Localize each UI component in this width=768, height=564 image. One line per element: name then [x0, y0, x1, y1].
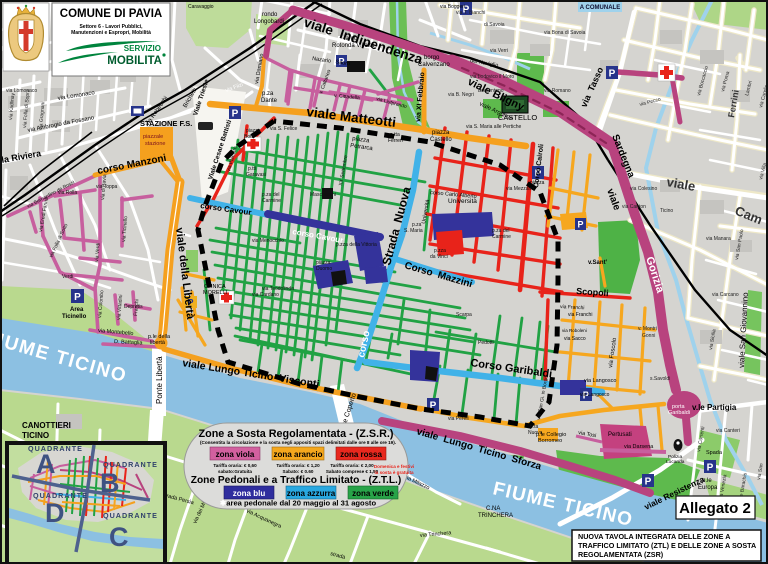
svg-text:Rotonda Villetta: Rotonda Villetta	[332, 43, 375, 49]
svg-text:Sabato comprese € 1,50: Sabato comprese € 1,50	[326, 469, 379, 474]
svg-text:COMUNE DI PAVIA: COMUNE DI PAVIA	[60, 8, 162, 20]
svg-text:via Sacco: via Sacco	[564, 336, 586, 342]
svg-text:via S. Maria alle Pertiche: via S. Maria alle Pertiche	[466, 124, 522, 130]
svg-text:Breventano: Breventano	[478, 88, 504, 94]
svg-text:zona arancio: zona arancio	[274, 450, 323, 459]
svg-text:via Colesino: via Colesino	[630, 186, 657, 192]
svg-text:C: C	[109, 522, 129, 552]
svg-text:SERVIZIO: SERVIZIO	[124, 44, 161, 53]
svg-text:zona viola: zona viola	[216, 450, 255, 459]
svg-text:Mascheroni: Mascheroni	[310, 192, 336, 198]
svg-text:P: P	[232, 109, 239, 120]
svg-text:largo: largo	[344, 36, 358, 42]
svg-text:Caravaggio: Caravaggio	[188, 4, 214, 10]
svg-text:via Franchi: via Franchi	[568, 312, 592, 318]
svg-text:Allegato 2: Allegato 2	[679, 500, 751, 517]
svg-text:via Bona di Savoia: via Bona di Savoia	[544, 30, 586, 36]
svg-text:P: P	[707, 463, 714, 474]
svg-text:P: P	[645, 477, 652, 488]
svg-text:Tariffa oraria: € 0,60: Tariffa oraria: € 0,60	[213, 463, 257, 468]
svg-text:Castello: Castello	[430, 137, 452, 143]
svg-text:Pedotti: Pedotti	[478, 340, 494, 346]
svg-text:Tariffa oraria: € 1,20: Tariffa oraria: € 1,20	[276, 463, 320, 468]
svg-text:Locanda: Locanda	[666, 459, 685, 465]
svg-text:via Lodovico il Moro: via Lodovico il Moro	[470, 74, 514, 80]
svg-text:Zone Pedonali e a Traffico Lim: Zone Pedonali e a Traffico Limitato - (Z…	[191, 475, 402, 486]
svg-text:STAZIONE F.S.: STAZIONE F.S.	[140, 119, 192, 128]
svg-text:Ticinello: Ticinello	[62, 314, 87, 320]
svg-text:Ferreri: Ferreri	[388, 138, 403, 144]
svg-text:TICINO: TICINO	[22, 431, 49, 440]
svg-text:s.Savoldi: s.Savoldi	[650, 376, 670, 382]
svg-text:v.le Partigia: v.le Partigia	[692, 403, 737, 412]
svg-text:stazione: stazione	[145, 141, 166, 147]
svg-text:Ticino: Ticino	[660, 208, 673, 214]
svg-text:via Cardano: via Cardano	[252, 292, 279, 298]
svg-text:via Menocchio: via Menocchio	[252, 238, 284, 244]
svg-text:B: B	[100, 468, 120, 498]
svg-text:di Savoia: di Savoia	[484, 22, 505, 28]
svg-text:via Canton: via Canton	[622, 204, 646, 210]
svg-text:Scarpa: Scarpa	[456, 312, 472, 318]
svg-text:via Rolla: via Rolla	[58, 190, 77, 196]
svg-text:P: P	[74, 292, 81, 303]
svg-text:p.za: p.za	[262, 91, 274, 97]
svg-text:C.NA: C.NA	[486, 506, 500, 512]
svg-text:via T. Bianchi: via T. Bianchi	[456, 10, 485, 16]
svg-text:p.zza della Vittoria: p.zza della Vittoria	[336, 242, 377, 248]
svg-text:zona verde: zona verde	[352, 489, 394, 498]
svg-text:Zone a Sosta Regolamentata - (: Zone a Sosta Regolamentata - (Z.S.R.)	[199, 428, 394, 440]
svg-text:Dante: Dante	[261, 98, 278, 104]
svg-text:A: A	[36, 449, 56, 479]
svg-text:Sabato: € 0.60: Sabato: € 0.60	[283, 469, 314, 474]
svg-text:D: D	[45, 498, 65, 528]
svg-text:sabato:Gratuita: sabato:Gratuita	[218, 469, 252, 474]
svg-text:via Romano: via Romano	[544, 88, 571, 94]
svg-text:NUOVA TAVOLA INTEGRATA DELLE: NUOVA TAVOLA INTEGRATA DELLE ZONE A	[578, 532, 730, 541]
svg-text:via Manara: via Manara	[706, 236, 731, 242]
svg-text:via Pereli: via Pereli	[448, 416, 469, 422]
svg-text:Duomo: Duomo	[316, 266, 332, 272]
svg-text:zona blu: zona blu	[233, 489, 266, 498]
svg-text:da Vinci: da Vinci	[430, 254, 448, 260]
svg-text:via Langosco: via Langosco	[580, 392, 610, 398]
svg-text:Nuova: Nuova	[528, 430, 543, 436]
svg-text:Garibaldi: Garibaldi	[668, 410, 690, 416]
svg-text:A COMUNALE: A COMUNALE	[580, 5, 620, 11]
svg-text:via Darsena: via Darsena	[624, 444, 654, 450]
svg-text:via Canteri: via Canteri	[716, 428, 740, 434]
svg-text:P: P	[577, 220, 583, 230]
svg-text:MOBILITA: MOBILITA	[107, 55, 162, 67]
svg-text:Domenica e festivi: Domenica e festivi	[374, 464, 414, 469]
svg-text:via B. Negri: via B. Negri	[448, 92, 474, 98]
svg-text:Pertusati: Pertusati	[608, 432, 632, 438]
svg-text:zona azzurra: zona azzurra	[287, 489, 336, 498]
svg-text:✱area pedonale dal 20 maggio a: ✱area pedonale dal 20 maggio al 31 agost…	[220, 499, 377, 508]
svg-text:REGOLAMENTATA (ZSR): REGOLAMENTATA (ZSR)	[578, 550, 664, 559]
svg-text:zona rossa: zona rossa	[340, 450, 382, 459]
svg-text:(Consentita la circolazione e: (Consentita la circolazione e la sosta n…	[200, 440, 396, 445]
svg-text:TRAFFICO LIMITATO (ZTL) E DELL: TRAFFICO LIMITATO (ZTL) E DELLE ZONE A S…	[578, 541, 756, 550]
svg-text:piazza: piazza	[432, 130, 450, 136]
svg-text:MORELLI: MORELLI	[203, 290, 228, 296]
svg-text:QUADRANTE: QUADRANTE	[103, 511, 158, 520]
svg-text:via Langosco: via Langosco	[584, 378, 616, 384]
svg-text:CASTELLO: CASTELLO	[498, 113, 537, 122]
svg-text:Gonni: Gonni	[642, 333, 655, 339]
svg-text:v.Sant’: v.Sant’	[588, 260, 608, 266]
svg-text:P: P	[609, 69, 616, 80]
svg-text:Carmine: Carmine	[262, 198, 281, 204]
svg-text:v. Montri: v. Montri	[638, 326, 657, 332]
svg-text:via Carcano: via Carcano	[712, 292, 739, 298]
svg-text:p.le: p.le	[702, 478, 712, 484]
svg-text:Longobardi: Longobardi	[254, 19, 284, 25]
svg-text:Manutenzioni e Espropri, Mobil: Manutenzioni e Espropri, Mobilità	[71, 30, 151, 36]
svg-text:Europa: Europa	[698, 485, 718, 491]
svg-text:Ponte Libertà: Ponte Libertà	[155, 356, 164, 404]
svg-text:CANOTTIERI: CANOTTIERI	[22, 421, 71, 430]
svg-text:via Verri: via Verri	[490, 48, 508, 54]
svg-text:Verdi: Verdi	[62, 274, 73, 280]
svg-text:TRINCHERA: TRINCHERA	[478, 513, 513, 519]
svg-text:Area: Area	[70, 307, 84, 313]
svg-text:Calvenzano: Calvenzano	[418, 62, 450, 68]
svg-text:via Lomonaco: via Lomonaco	[6, 88, 37, 94]
svg-text:Tariffa oraria: € 2,00: Tariffa oraria: € 2,00	[330, 463, 374, 468]
svg-text:via Franchi: via Franchi	[560, 304, 585, 311]
svg-text:via S. Felice: via S. Felice	[270, 126, 297, 132]
svg-text:via Mezzano: via Mezzano	[506, 186, 534, 192]
svg-text:libertà: libertà	[150, 340, 166, 346]
svg-text:borgo: borgo	[424, 55, 440, 61]
svg-text:via Roboleni: via Roboleni	[562, 328, 587, 333]
svg-text:S. Maria: S. Maria	[404, 228, 423, 234]
svg-text:Botti: Botti	[244, 134, 254, 140]
svg-text:Spada: Spada	[706, 450, 723, 456]
svg-text:piazzale: piazzale	[143, 134, 163, 140]
svg-text:Garavasi: Garavasi	[246, 172, 266, 178]
svg-text:Carmine: Carmine	[492, 234, 511, 240]
svg-text:rondo: rondo	[262, 12, 278, 18]
svg-text:Borromeo: Borromeo	[538, 438, 562, 444]
